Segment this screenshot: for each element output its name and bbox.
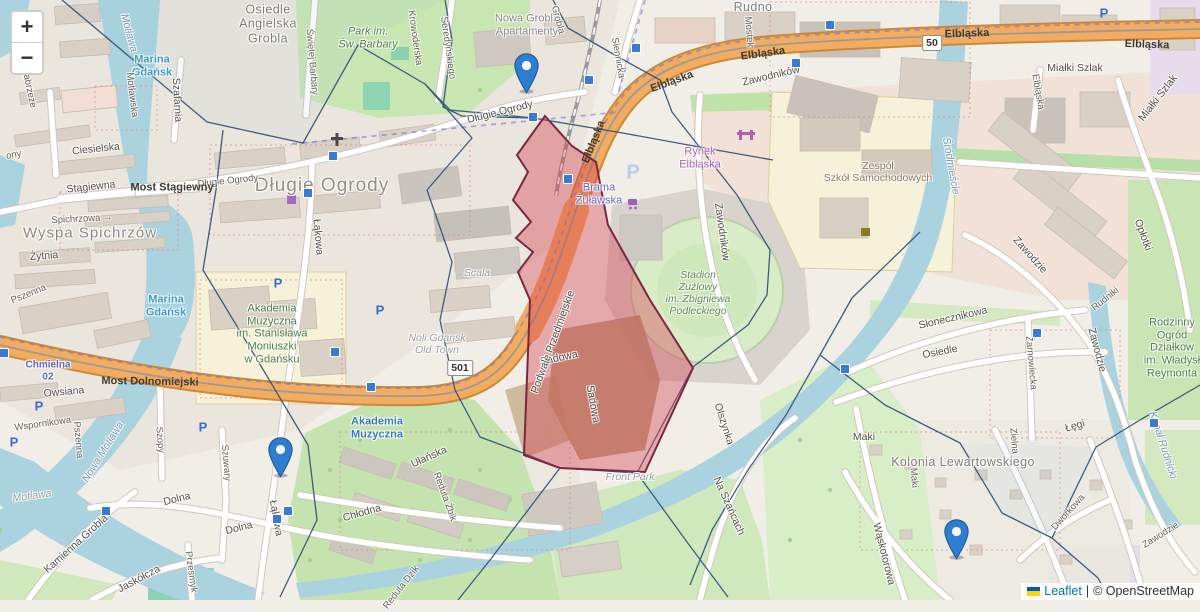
industrial-icon — [861, 228, 870, 236]
shop-icon — [287, 195, 296, 204]
leaflet-link[interactable]: Leaflet — [1044, 584, 1082, 598]
attribution-separator: | — [1086, 584, 1089, 598]
marker-lakowa[interactable] — [268, 437, 293, 478]
zoom-control: + − — [10, 10, 44, 75]
map-canvas[interactable] — [0, 0, 1200, 600]
ukraine-flag-icon — [1027, 587, 1040, 596]
osm-attribution: © OpenStreetMap — [1093, 584, 1194, 598]
attribution-bar: Leaflet | © OpenStreetMap — [1021, 583, 1200, 600]
zoom-in-button[interactable]: + — [12, 12, 42, 43]
zoom-out-button[interactable]: − — [12, 43, 42, 73]
marker-kolonia[interactable] — [944, 519, 969, 560]
marker-dlugie-ogrody[interactable] — [514, 53, 539, 94]
